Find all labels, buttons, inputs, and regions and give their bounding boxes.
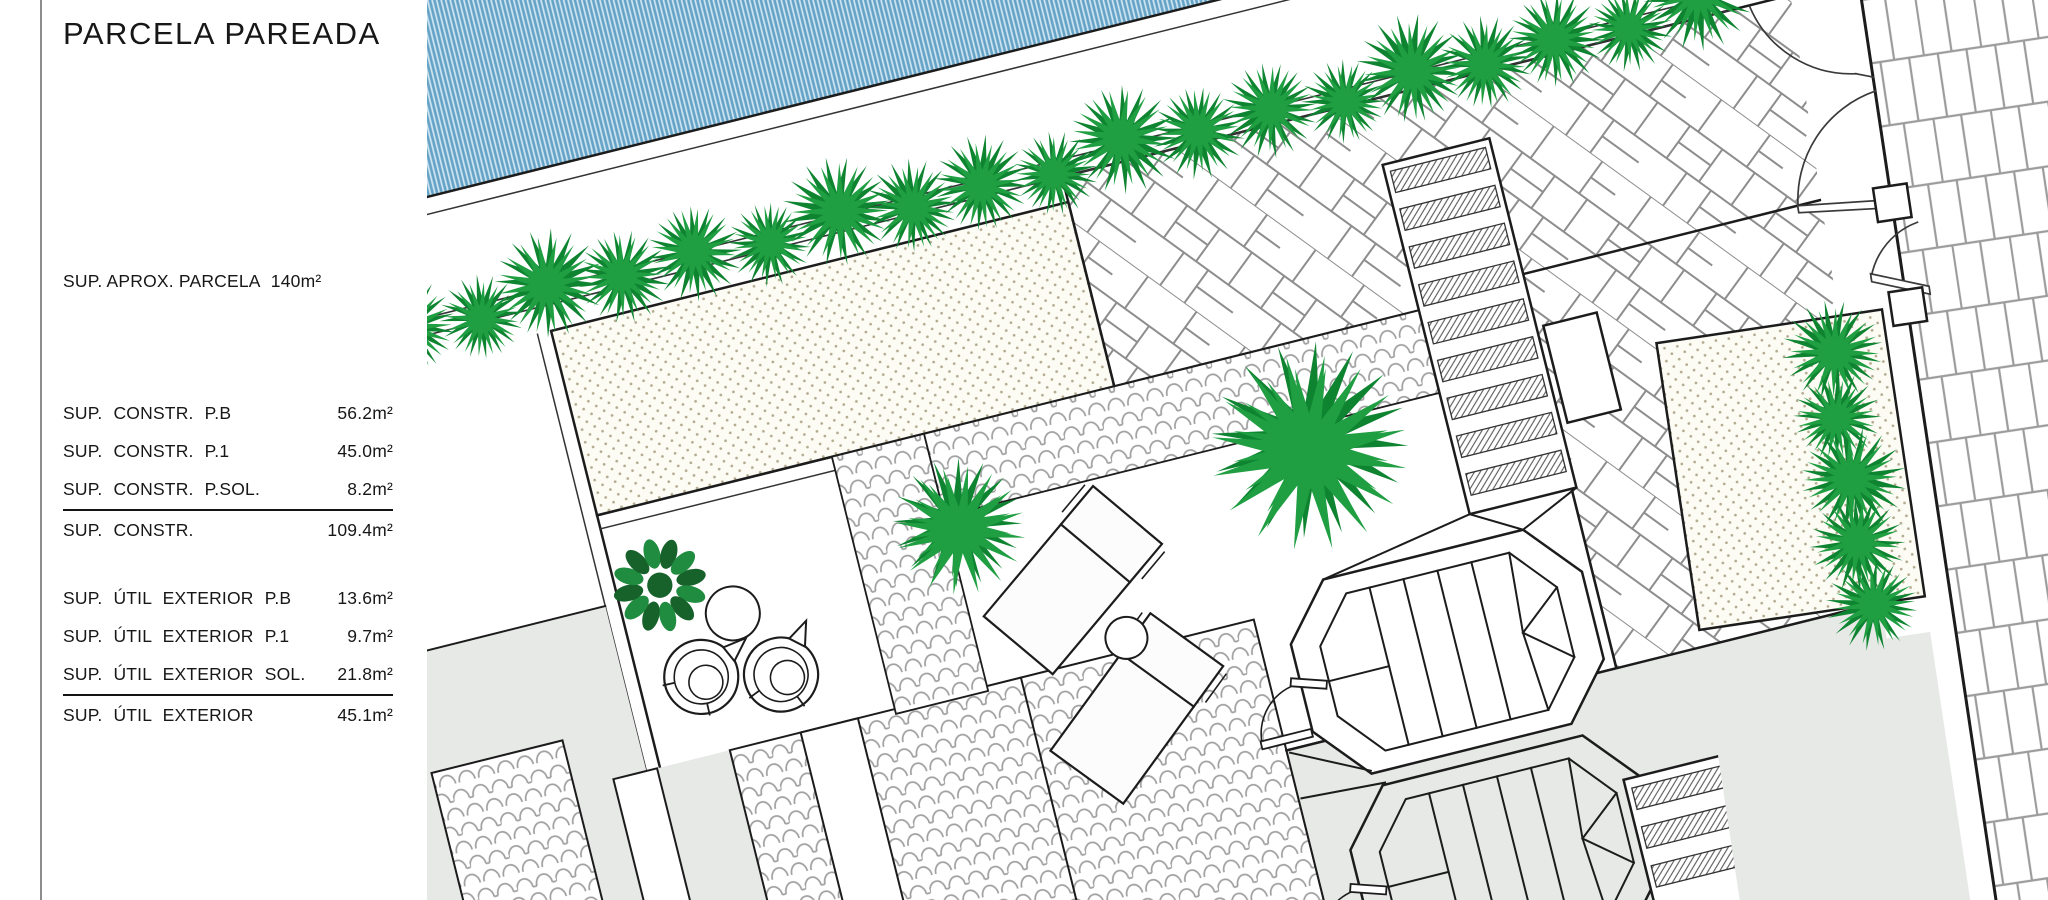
area-row-label: SUP. ÚTIL EXTERIOR P.B <box>63 588 291 609</box>
built-total-label: SUP. CONSTR. <box>63 520 194 541</box>
exterior-total-label: SUP. ÚTIL EXTERIOR <box>63 705 254 726</box>
sum-line <box>63 694 393 696</box>
area-row-label: SUP. ÚTIL EXTERIOR SOL. <box>63 664 305 685</box>
area-row-value: 9.7m² <box>347 626 393 647</box>
area-row: SUP. ÚTIL EXTERIOR P.B 13.6m² <box>63 579 393 617</box>
area-row-label: SUP. CONSTR. P.B <box>63 403 231 424</box>
area-row: SUP. ÚTIL EXTERIOR SOL. 21.8m² <box>63 655 393 693</box>
built-total-value: 109.4m² <box>327 520 393 541</box>
plan-title: PARCELA PAREADA <box>63 16 381 52</box>
parcel-area-label: SUP. APROX. PARCELA <box>63 271 260 291</box>
area-row-value: 21.8m² <box>337 664 393 685</box>
gate-post-1 <box>1873 183 1912 222</box>
exterior-total-value: 45.1m² <box>337 705 393 726</box>
area-row: SUP. CONSTR. P.B 56.2m² <box>63 394 393 432</box>
area-row-value: 56.2m² <box>337 403 393 424</box>
sum-line <box>63 509 393 511</box>
exterior-areas-table: SUP. ÚTIL EXTERIOR P.B 13.6m² SUP. ÚTIL … <box>63 579 393 733</box>
area-row-label: SUP. ÚTIL EXTERIOR P.1 <box>63 626 289 647</box>
parcel-area-value: 140m² <box>271 271 322 291</box>
area-row-value: 13.6m² <box>337 588 393 609</box>
area-row-label: SUP. CONSTR. P.SOL. <box>63 479 260 500</box>
site-plan <box>427 0 2048 900</box>
gate-post-2 <box>1888 287 1927 326</box>
area-row: SUP. CONSTR. P.SOL. 8.2m² <box>63 470 393 508</box>
sheet-border-line <box>40 0 42 900</box>
area-row-value: 45.0m² <box>337 441 393 462</box>
built-areas-table: SUP. CONSTR. P.B 56.2m² SUP. CONSTR. P.1… <box>63 394 393 548</box>
parcel-area-note: SUP. APROX. PARCELA 140m² <box>63 271 321 292</box>
area-row: SUP. CONSTR. P.1 45.0m² <box>63 432 393 470</box>
area-row-label: SUP. CONSTR. P.1 <box>63 441 229 462</box>
info-panel: PARCELA PAREADA SUP. APROX. PARCELA 140m… <box>0 0 427 900</box>
area-row: SUP. ÚTIL EXTERIOR P.1 9.7m² <box>63 617 393 655</box>
area-row-value: 8.2m² <box>347 479 393 500</box>
exterior-total-row: SUP. ÚTIL EXTERIOR 45.1m² <box>63 697 393 733</box>
built-total-row: SUP. CONSTR. 109.4m² <box>63 512 393 548</box>
